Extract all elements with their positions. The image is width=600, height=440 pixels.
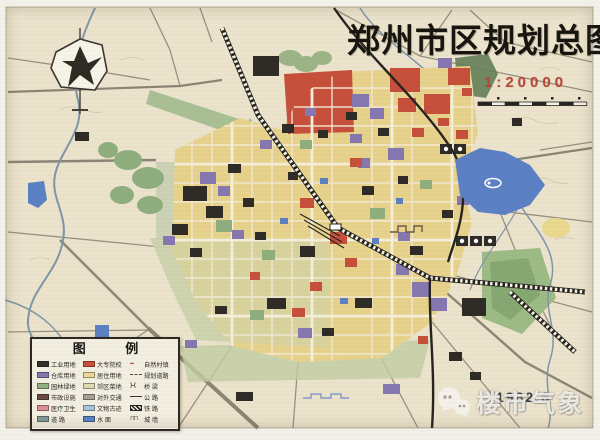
legend-label: 道 路 (51, 414, 65, 424)
legend-title: 图 例 (37, 341, 174, 356)
legend-item: 公 路 (130, 392, 174, 402)
legend-symbol (130, 405, 142, 411)
legend-symbol (130, 416, 142, 422)
legend-swatch (83, 394, 95, 400)
station-symbol (330, 224, 341, 230)
legend-swatch (83, 361, 95, 367)
legend-label: 规划道路 (144, 370, 169, 380)
watermark-text: 楼市气象 (476, 384, 584, 420)
legend-item: 居住用地 (83, 370, 130, 380)
legend-label: 自然村镇 (144, 359, 169, 369)
sand-patch (542, 218, 570, 238)
legend-label: 大专院校 (97, 359, 122, 369)
legend-row: 道 路 水 面 城 墙 (37, 413, 174, 424)
legend-item: 铁 路 (130, 403, 174, 413)
legend-label: 市政设施 (51, 392, 76, 402)
legend-item: 城 墙 (130, 414, 174, 424)
legend-label: 城 墙 (144, 414, 158, 424)
legend-row: 仓库用地 居住用地 规划道路 (37, 369, 174, 380)
legend-symbol (130, 383, 142, 389)
college-district (284, 70, 354, 134)
scale-bar (477, 97, 589, 109)
legend-label: 园林绿地 (51, 381, 76, 391)
legend-swatch (83, 405, 95, 411)
legend-swatch (37, 394, 49, 400)
legend-item: 自然村镇 (130, 359, 174, 369)
legend-swatch (37, 383, 49, 389)
legend-label: 公 路 (144, 392, 158, 402)
legend-item: 园林绿地 (37, 381, 83, 391)
legend-item: 工业用地 (37, 359, 83, 369)
legend-row: 市政设施 对外交通 公 路 (37, 391, 174, 402)
legend-swatch (37, 361, 49, 367)
legend-label: 仓库用地 (51, 370, 76, 380)
legend-item: 水 面 (83, 414, 130, 424)
legend-item: 医疗卫生 (37, 403, 83, 413)
legend-swatch (37, 405, 49, 411)
legend-label: 桥 梁 (144, 381, 158, 391)
legend-swatch (37, 416, 49, 422)
legend-label: 对外交通 (97, 392, 122, 402)
chat-bubbles-icon (436, 385, 472, 419)
legend-label: 工业用地 (51, 359, 76, 369)
watermark: 楼市气象 (436, 384, 584, 420)
legend-row: 医疗卫生 文物古迹 铁 路 (37, 402, 174, 413)
legend-label: 水 面 (97, 414, 111, 424)
legend-item: 文物古迹 (83, 403, 130, 413)
legend-label: 郊区菜地 (97, 381, 122, 391)
legend-box: 图 例 工业用地 大专院校 自然村镇 仓库用地 居住用地 规划道路 园林绿地 郊… (30, 337, 180, 431)
legend-swatch (83, 372, 95, 378)
legend-item: 桥 梁 (130, 381, 174, 391)
map-title: 郑州市区规划总图 (347, 14, 600, 62)
legend-label: 文物古迹 (97, 403, 122, 413)
legend-symbol (130, 361, 142, 367)
legend-swatch (83, 416, 95, 422)
legend-row: 工业用地 大专院校 自然村镇 (37, 358, 174, 369)
north-arrow-emblem (38, 26, 116, 118)
legend-symbol (130, 374, 142, 375)
legend-item: 道 路 (37, 414, 83, 424)
legend-item: 对外交通 (83, 392, 130, 402)
legend-item: 大专院校 (83, 359, 130, 369)
legend-label: 铁 路 (144, 403, 158, 413)
legend-swatch (83, 383, 95, 389)
legend-label: 医疗卫生 (51, 403, 76, 413)
legend-item: 仓库用地 (37, 370, 83, 380)
legend-item: 规划道路 (130, 370, 174, 380)
legend-item: 市政设施 (37, 392, 83, 402)
scanned-map-photo: 郑州市区规划总图 1:20000 图 例 工业用地 大专院校 自然村镇 仓库用地… (0, 0, 600, 440)
legend-symbol (130, 396, 142, 397)
legend-swatch (37, 372, 49, 378)
scale-label: 1:20000 (484, 74, 567, 91)
legend-row: 园林绿地 郊区菜地 桥 梁 (37, 380, 174, 391)
legend-item: 郊区菜地 (83, 381, 130, 391)
legend-label: 居住用地 (97, 370, 122, 380)
